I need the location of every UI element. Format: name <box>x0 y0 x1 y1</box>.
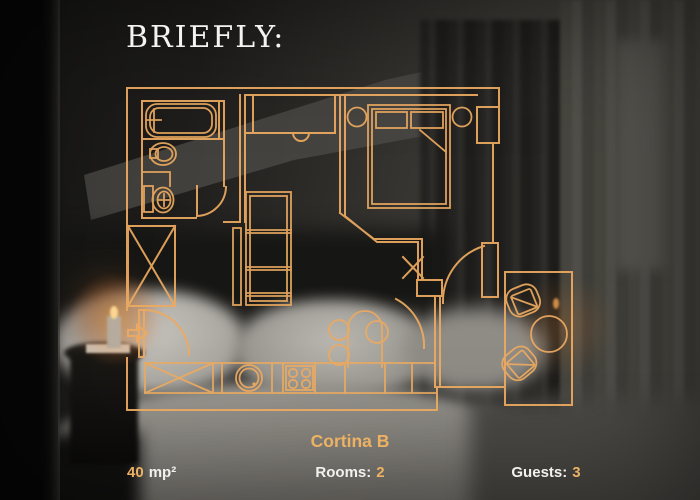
lounge-chair-icon <box>503 281 544 320</box>
toilet-icon <box>142 172 174 213</box>
bed-icon <box>348 105 472 208</box>
sofa-icon <box>233 192 291 305</box>
washbasin-icon <box>150 143 176 165</box>
guests-value: 3 <box>572 464 580 481</box>
bedside-table-icon <box>453 108 472 127</box>
bathtub-icon <box>146 104 216 137</box>
door-leaf <box>482 243 498 297</box>
cabinet-cross <box>145 363 213 393</box>
rooms-stat: Rooms:2 <box>280 464 420 481</box>
apartment-name: Cortina B <box>250 431 450 452</box>
listing-card: BRIEFLY: Cortina B 40mp² Rooms:2 Guests:… <box>0 0 700 500</box>
lounge-set <box>498 281 567 385</box>
stool-icon <box>329 345 349 365</box>
area-stat: 40mp² <box>127 464 176 481</box>
bedside-table-icon <box>348 108 367 127</box>
closet-icon <box>128 226 175 306</box>
pillow-icon <box>376 112 407 128</box>
round-table-icon <box>531 316 567 352</box>
dining-set <box>329 311 388 367</box>
rooms-label: Rooms: <box>315 464 371 481</box>
rooms-value: 2 <box>376 464 384 481</box>
bathroom-door <box>197 186 226 216</box>
stool-icon <box>366 321 388 343</box>
door-swing-marker <box>403 257 423 278</box>
page-title: BRIEFLY: <box>126 20 285 55</box>
guests-label: Guests: <box>511 464 567 481</box>
door-arc <box>443 246 484 303</box>
door-arc <box>396 299 424 348</box>
sink-icon <box>236 365 262 391</box>
floor-plan <box>0 0 700 500</box>
blanket-fold <box>420 130 446 152</box>
interior-walls <box>142 95 498 387</box>
dining-table-icon <box>348 311 382 367</box>
sconce-arc <box>293 133 309 141</box>
area-value: 40 <box>127 464 144 481</box>
area-unit: mp² <box>149 464 177 481</box>
pillow-icon <box>411 112 443 128</box>
stove-icon <box>286 366 313 390</box>
guests-stat: Guests:3 <box>478 464 614 481</box>
stool-icon <box>329 320 349 340</box>
